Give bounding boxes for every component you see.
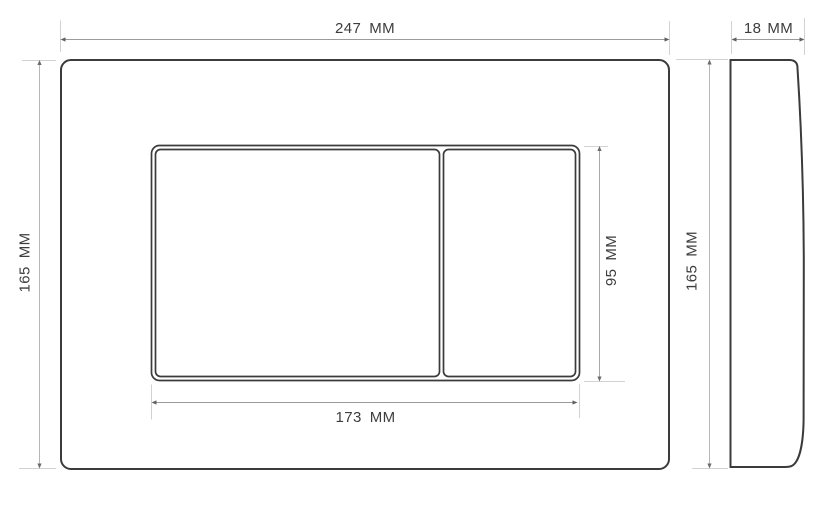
svg-text:95 MM: 95 MM [603,235,620,286]
svg-text:165 MM: 165 MM [684,231,701,291]
svg-text:18 MM: 18 MM [744,20,793,37]
svg-text:173 MM: 173 MM [335,409,395,426]
svg-text:165 MM: 165 MM [17,232,34,292]
svg-text:247 MM: 247 MM [335,20,395,37]
